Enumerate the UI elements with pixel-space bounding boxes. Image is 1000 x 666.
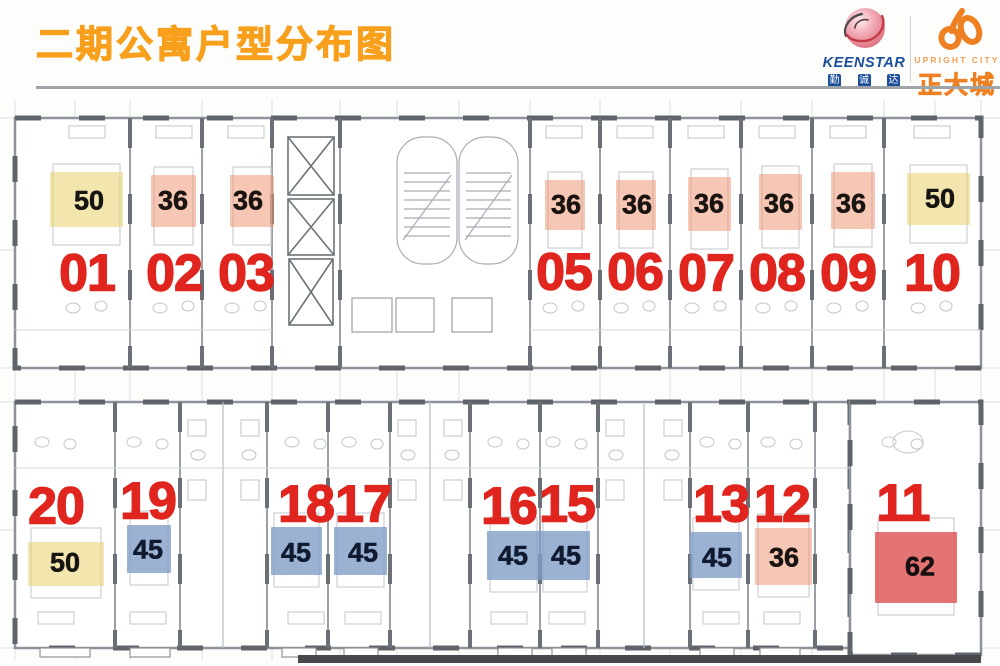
unit-01-number: 01 bbox=[59, 245, 115, 303]
unit-05-number: 05 bbox=[536, 244, 592, 302]
unit-15-area-label: 45 bbox=[551, 541, 581, 571]
unit-02-area-label: 36 bbox=[158, 186, 188, 216]
unit-19-number: 19 bbox=[120, 473, 176, 531]
unit-16-number: 16 bbox=[481, 478, 537, 536]
unit-12-area-label: 36 bbox=[769, 543, 799, 573]
keenstar-wordmark: KEENSTAR bbox=[820, 55, 908, 71]
header: 二期公寓户型分布图 KEENSTAR 勤 诚 达 bbox=[0, 0, 1000, 94]
unit-01-area-label: 50 bbox=[74, 186, 104, 216]
base-wall-strip bbox=[298, 655, 981, 663]
keenstar-sphere-icon bbox=[840, 6, 888, 52]
floorplan-canvas: 5001360236033605360636073608360950105020… bbox=[0, 0, 1000, 666]
logo-divider bbox=[910, 16, 911, 82]
upright-city-en-name: UPRIGHT CITY bbox=[914, 55, 1000, 65]
unit-17-area-label: 45 bbox=[348, 538, 378, 568]
unit-11-area-label: 62 bbox=[905, 552, 935, 582]
unit-03-area-label: 36 bbox=[233, 186, 263, 216]
unit-19-area-label: 45 bbox=[133, 535, 163, 565]
unit-08-area-label: 36 bbox=[764, 189, 794, 219]
elevator-core bbox=[288, 137, 334, 325]
unit-02-number: 02 bbox=[146, 245, 202, 303]
unit-16-area-label: 45 bbox=[498, 541, 528, 571]
unit-15-number: 15 bbox=[539, 476, 595, 534]
unit-10-area-label: 50 bbox=[925, 184, 955, 214]
unit-09-area-label: 36 bbox=[836, 189, 866, 219]
unit-08-number: 08 bbox=[749, 245, 805, 303]
unit-13-area-label: 45 bbox=[702, 543, 732, 573]
unit-20-area-label: 50 bbox=[50, 548, 80, 578]
page-root: 5001360236033605360636073608360950105020… bbox=[0, 0, 1000, 666]
unit-13-number: 13 bbox=[693, 476, 749, 534]
header-divider bbox=[36, 86, 1000, 89]
upright-city-cn-name: 正大城 bbox=[914, 65, 1000, 100]
unit-20-number: 20 bbox=[28, 478, 84, 536]
unit-12-number: 12 bbox=[754, 476, 810, 534]
unit-11-number: 11 bbox=[877, 475, 930, 533]
unit-10-number: 10 bbox=[904, 245, 960, 303]
unit-06-area-label: 36 bbox=[622, 190, 652, 220]
unit-03-number: 03 bbox=[218, 245, 274, 303]
unit-07-number: 07 bbox=[678, 245, 734, 303]
keenstar-logo: KEENSTAR 勤 诚 达 bbox=[820, 6, 908, 87]
upright-city-60-icon bbox=[929, 6, 985, 50]
unit-18-number: 18 bbox=[278, 476, 334, 534]
page-title: 二期公寓户型分布图 bbox=[36, 14, 396, 68]
unit-07-area-label: 36 bbox=[694, 189, 724, 219]
unit-05-area-label: 36 bbox=[551, 190, 581, 220]
unit-06-number: 06 bbox=[607, 244, 663, 302]
unit-17-number: 17 bbox=[335, 476, 391, 534]
unit-09-number: 09 bbox=[820, 245, 876, 303]
unit-18-area-label: 45 bbox=[281, 538, 311, 568]
